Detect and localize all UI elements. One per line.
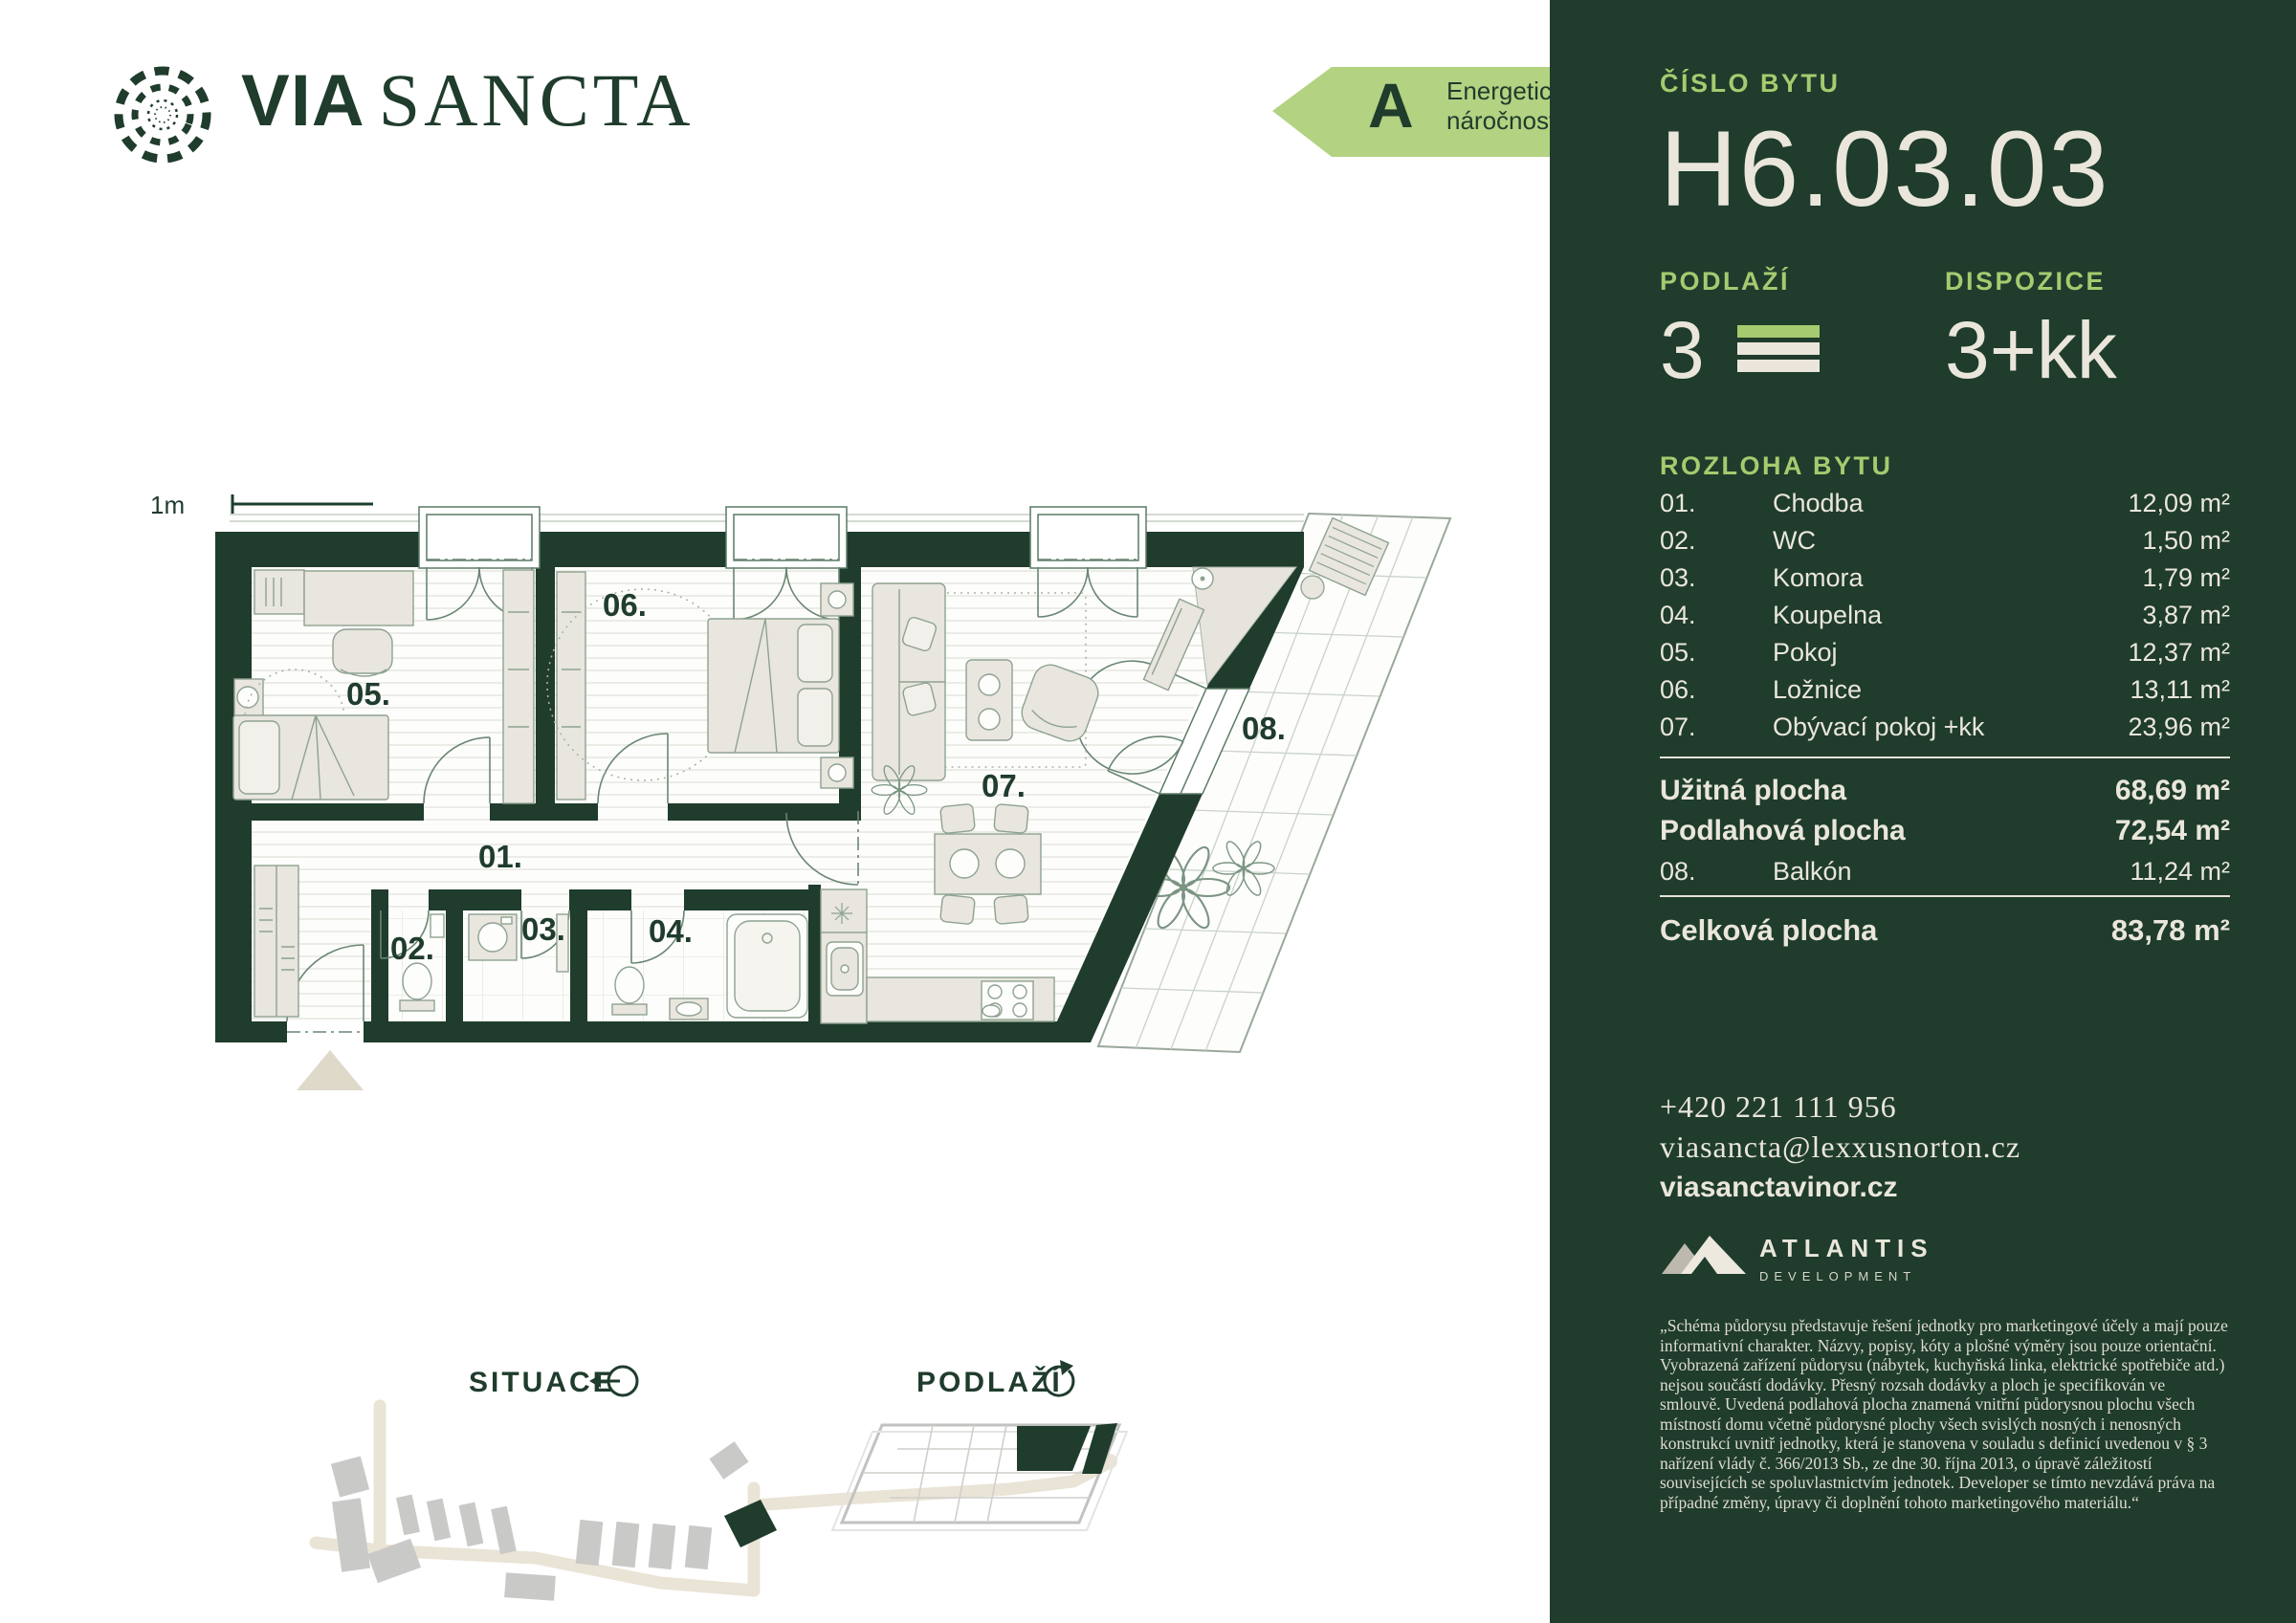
site-plan bbox=[316, 1406, 1117, 1601]
scale-label: 1m bbox=[150, 491, 185, 519]
contact-email: viasancta@lexxusnorton.cz bbox=[1660, 1127, 2230, 1167]
floor-area-row: Podlahová plocha72,54 m² bbox=[1660, 811, 2230, 851]
site-buildings bbox=[331, 1441, 749, 1601]
contact-phone: +420 221 111 956 bbox=[1660, 1086, 2230, 1127]
room-label-06: 06. bbox=[603, 587, 647, 623]
table-row: 04.Koupelna3,87 m² bbox=[1660, 597, 2230, 634]
podlazi-label: PODLAŽÍ bbox=[916, 1366, 1063, 1398]
room-label-05: 05. bbox=[346, 676, 390, 712]
brand-logo: VIA SANCTA bbox=[105, 57, 695, 143]
disposition-block: DISPOZICE 3+kk bbox=[1945, 267, 2230, 397]
room-label-07: 07. bbox=[982, 768, 1026, 803]
room-label-03: 03. bbox=[521, 911, 565, 947]
usable-area-row: Užitná plocha68,69 m² bbox=[1660, 771, 2230, 811]
room-label-08: 08. bbox=[1242, 711, 1286, 746]
disposition-value: 3+kk bbox=[1945, 304, 2117, 397]
brand-word-sancta: SANCTA bbox=[379, 57, 695, 143]
energy-badge: A Energetická náročnost bbox=[1272, 61, 1552, 163]
room-label-02: 02. bbox=[390, 931, 434, 966]
divider bbox=[1660, 895, 2230, 897]
table-row: 01.Chodba12,09 m² bbox=[1660, 485, 2230, 522]
table-row: 03.Komora1,79 m² bbox=[1660, 559, 2230, 597]
table-row: 02.WC1,50 m² bbox=[1660, 522, 2230, 559]
brand-word-via: VIA bbox=[241, 59, 365, 143]
floor-level-icon bbox=[1737, 325, 1820, 377]
energy-grade: A bbox=[1368, 69, 1414, 142]
balcony-table bbox=[1301, 576, 1324, 599]
floor-label: PODLAŽÍ bbox=[1660, 267, 1945, 296]
floor-disposition-row: PODLAŽÍ 3 DISPOZICE 3+kk bbox=[1660, 267, 2230, 397]
table-row: 07.Obývací pokoj +kk23,96 m² bbox=[1660, 709, 2230, 746]
info-panel: ČÍSLO BYTU H6.03.03 PODLAŽÍ 3 DISPOZICE … bbox=[1550, 0, 2296, 1623]
developer-name: ATLANTIS bbox=[1759, 1234, 1934, 1263]
rooms-heading: ROZLOHA BYTU bbox=[1660, 451, 2230, 481]
balcony-row: 08.Balkón11,24 m² bbox=[1660, 851, 2230, 891]
developer-logo: ATLANTIS DEVELOPMENT bbox=[1660, 1230, 2230, 1283]
disposition-label: DISPOZICE bbox=[1945, 267, 2230, 296]
floor-highlight-unit bbox=[1017, 1426, 1091, 1471]
rooms-table: 01.Chodba12,09 m² 02.WC1,50 m² 03.Komora… bbox=[1660, 485, 2230, 746]
flyer-page: VIA SANCTA A Energetická náročnost bbox=[0, 0, 2296, 1623]
unit-number-label: ČÍSLO BYTU bbox=[1660, 69, 2230, 99]
mountain-icon bbox=[1660, 1230, 1748, 1278]
total-area-row: Celková plocha83,78 m² bbox=[1660, 910, 2230, 951]
disclaimer-text: „Schéma půdorysu představuje řešení jedn… bbox=[1660, 1316, 2230, 1512]
minimaps: SITUACE bbox=[268, 1339, 1148, 1607]
table-row: 05.Pokoj12,37 m² bbox=[1660, 634, 2230, 671]
floor-value: 3 bbox=[1660, 304, 1705, 397]
unit-number: H6.03.03 bbox=[1660, 107, 2230, 230]
brand-spiral-icon bbox=[105, 57, 220, 172]
contact-block: +420 221 111 956 viasancta@lexxusnorton.… bbox=[1660, 1086, 2230, 1209]
room-label-01: 01. bbox=[478, 839, 522, 874]
developer-subtitle: DEVELOPMENT bbox=[1759, 1269, 1934, 1283]
scale-bar bbox=[232, 494, 373, 514]
floorplan-drawing: 1m bbox=[134, 478, 1502, 1148]
floor-block: PODLAŽÍ 3 bbox=[1660, 267, 1945, 397]
contact-website: viasanctavinor.cz bbox=[1660, 1167, 2230, 1209]
room-label-04: 04. bbox=[649, 913, 693, 949]
divider bbox=[1660, 757, 2230, 758]
table-row: 06.Ložnice13,11 m² bbox=[1660, 671, 2230, 709]
entrance-arrow bbox=[297, 1050, 364, 1090]
